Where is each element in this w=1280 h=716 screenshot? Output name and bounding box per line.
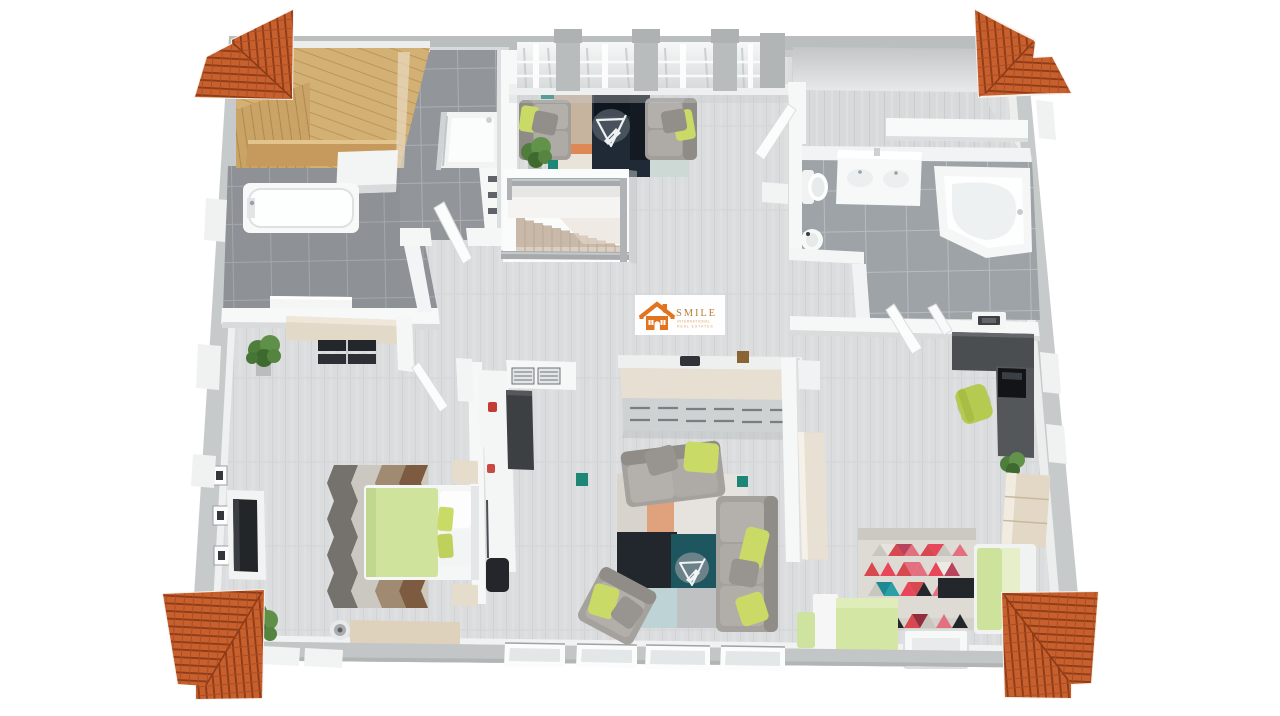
svg-text:SMILE: SMILE — [676, 308, 717, 319]
svg-text:REAL ESTATES: REAL ESTATES — [677, 325, 714, 329]
svg-text:INTERNATIONAL: INTERNATIONAL — [677, 320, 710, 324]
